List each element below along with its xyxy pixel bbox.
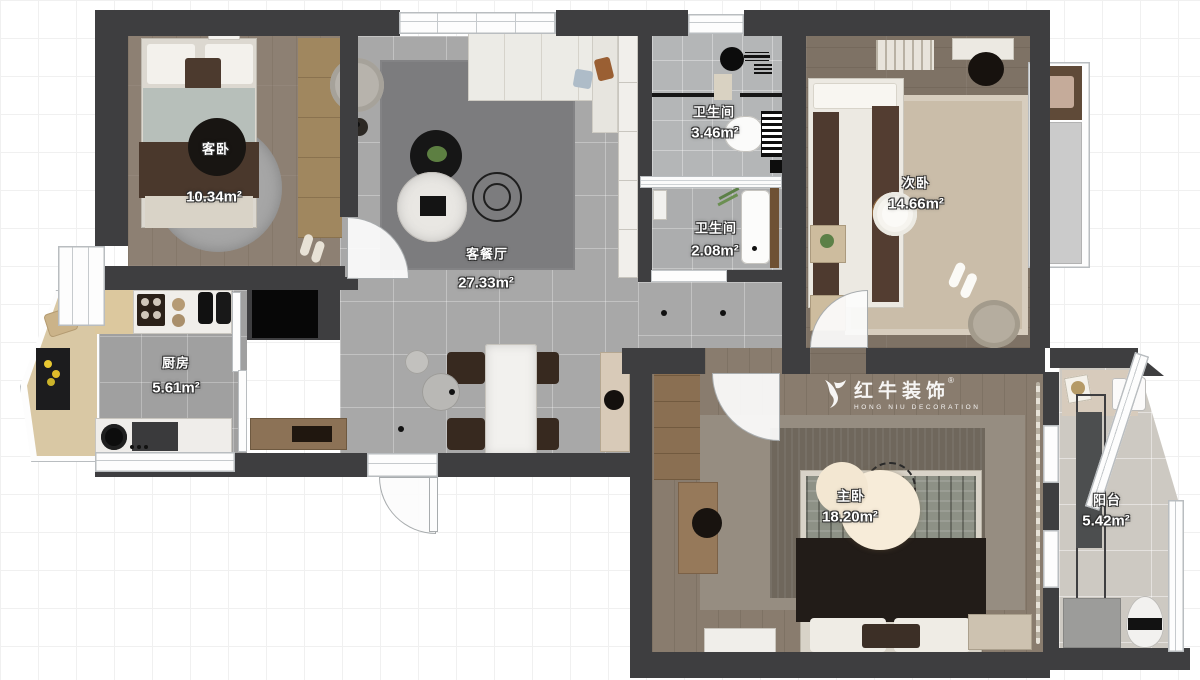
- registered-mark: ®: [948, 376, 954, 385]
- brand-name-en: HONG NIU DECORATION: [854, 404, 981, 411]
- wall-hall-a: [622, 348, 705, 374]
- wall-master-east: [1043, 372, 1059, 652]
- room-label-second-area: 14.66m²: [888, 196, 944, 213]
- stove-burner: [141, 298, 149, 306]
- bath-window: [688, 14, 744, 34]
- pendant-lamp-small: [405, 350, 429, 374]
- sofa-pillow-blue: [573, 69, 594, 90]
- dining-chair: [447, 418, 485, 450]
- master-bed-runner: [796, 538, 986, 622]
- mop-sink-bar: [1128, 618, 1162, 630]
- room-label-balcony-name: 阳台: [1093, 490, 1121, 509]
- lemon-decor: [44, 360, 52, 368]
- kitchen-sliding-door: [238, 370, 247, 452]
- room-label-bath1-name: 卫生间: [693, 102, 735, 121]
- wall-bath-east: [782, 10, 806, 348]
- vanity-icon: [653, 190, 667, 220]
- wall-balcony-top: [1050, 348, 1138, 368]
- sofa-chaise: [592, 33, 618, 133]
- nightstand-plant: [820, 234, 834, 248]
- balcony-mat: [1063, 598, 1121, 648]
- room-label-guest-area: 10.34m²: [186, 189, 242, 206]
- side-shelf: [618, 30, 638, 278]
- brand-name: 红牛装饰: [854, 376, 950, 403]
- tv-screen: [252, 290, 318, 338]
- decor-ring-inner: [483, 183, 511, 211]
- second-shelf: [876, 40, 934, 70]
- tub-drain: [752, 246, 757, 251]
- master-wardrobe: [654, 374, 700, 480]
- kitchen-bay-board: [36, 348, 70, 410]
- bathtub-panel: [770, 188, 779, 268]
- floor-dot: [720, 310, 726, 316]
- kitchen-jar: [172, 298, 185, 311]
- wall-guest-kitchen: [95, 266, 345, 290]
- bull-logo-icon: [822, 378, 848, 410]
- curtain-line: [1036, 382, 1040, 644]
- coffee-table-plant: [427, 146, 447, 162]
- living-top-window: [399, 12, 556, 34]
- room-label-bath2-area: 2.08m²: [691, 243, 739, 260]
- bath-sliding-door: [640, 176, 782, 188]
- wall-master-bottom: [630, 652, 1050, 678]
- room-label-living-name: 客餐厅: [466, 244, 508, 263]
- master-bench: [968, 614, 1032, 650]
- master-balcony-window-b: [1043, 530, 1059, 588]
- entry-stool: [604, 390, 624, 410]
- counter-dot: [130, 445, 134, 449]
- wall-guest-east: [340, 10, 358, 217]
- shoe-cabinet-decor: [292, 426, 332, 442]
- floor-plan-canvas: 红牛装饰 ® HONG NIU DECORATION 客卧 10.34m² 客餐…: [0, 0, 1200, 680]
- kitchen-sliding-door: [232, 292, 241, 372]
- second-bed-throw-left: [813, 112, 839, 300]
- master-dresser: [704, 628, 776, 654]
- room-label-second-name: 次卧: [902, 173, 930, 192]
- bath-mat: [714, 74, 732, 100]
- kitchen-pot-black: [198, 292, 213, 324]
- cooktop-dark: [132, 422, 178, 451]
- wall-left-guest: [95, 10, 128, 246]
- balcony-window-right: [1168, 500, 1184, 652]
- wall-master-west: [630, 372, 652, 678]
- entrance-door-leaf: [429, 477, 438, 532]
- wall-hall-c: [866, 348, 1045, 374]
- guest-bed-cushion: [185, 58, 221, 90]
- floor-dot: [661, 310, 667, 316]
- plant-scribble: [1071, 381, 1085, 395]
- master-balcony-window-a: [1043, 425, 1059, 483]
- room-label-balcony-area: 5.42m²: [1082, 513, 1130, 530]
- second-door-threshold: [810, 348, 866, 374]
- bath-sink-icon: [720, 47, 744, 71]
- guest-window: [58, 246, 105, 326]
- floor-dot: [398, 426, 404, 432]
- towel-bar-icon: [744, 55, 770, 58]
- room-label-kitchen-area: 5.61m²: [152, 380, 200, 397]
- second-desk-chair: [968, 52, 1004, 86]
- dining-table: [485, 344, 537, 456]
- wall-top-guest: [95, 10, 350, 36]
- master-desk-chair: [692, 508, 722, 538]
- kitchen-bottom-window: [95, 452, 235, 472]
- hallway-floor: [638, 282, 782, 348]
- second-armchair: [968, 300, 1020, 348]
- bath-black-box: [770, 160, 782, 173]
- room-label-guest-name: 客卧: [202, 139, 230, 158]
- room-label-kitchen-name: 厨房: [162, 353, 190, 372]
- master-bed-cushion: [862, 624, 920, 648]
- room-label-bath2-name: 卫生间: [695, 218, 737, 237]
- bath2-door-opening: [651, 270, 727, 282]
- room-label-bath1-area: 3.46m²: [691, 125, 739, 142]
- shower-partition: [740, 93, 782, 97]
- brand-watermark: 红牛装饰 ® HONG NIU DECORATION: [822, 376, 981, 411]
- master-door-threshold: [705, 348, 782, 374]
- wall-second-east: [1030, 10, 1050, 348]
- wall-hall-b: [782, 348, 810, 374]
- wall-bottom-east: [438, 453, 640, 477]
- wall-bath-west: [638, 30, 652, 278]
- towel-rack-icon: [754, 62, 772, 74]
- bathtub-icon: [741, 190, 770, 264]
- coffee-table-tray: [420, 196, 446, 216]
- wall-top-living-b: [556, 10, 688, 36]
- room-label-master-name: 主卧: [837, 486, 865, 505]
- room-label-master-area: 18.20m²: [822, 509, 878, 526]
- wok-icon: [101, 424, 127, 450]
- room-label-living-area: 27.33m²: [458, 275, 514, 292]
- pendant-dot: [449, 389, 455, 395]
- radiator-icon: [762, 112, 782, 156]
- shower-partition: [650, 93, 714, 97]
- entrance-frame: [367, 453, 438, 477]
